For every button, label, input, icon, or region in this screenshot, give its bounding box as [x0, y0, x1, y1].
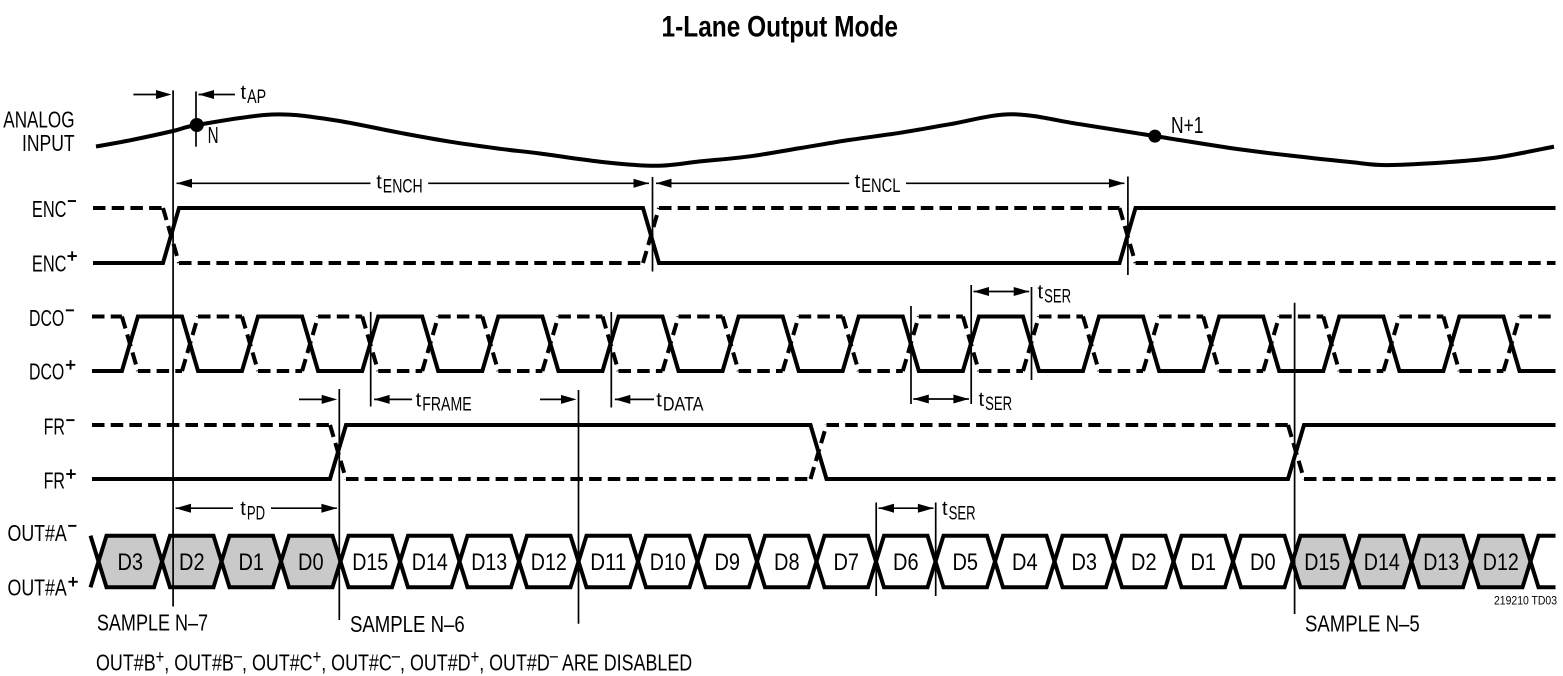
- svg-text:D2: D2: [179, 549, 205, 576]
- svg-text:1-Lane Output Mode: 1-Lane Output Mode: [662, 10, 899, 43]
- svg-text:ANALOG: ANALOG: [3, 107, 74, 133]
- svg-text:D12: D12: [531, 549, 567, 576]
- svg-text:D7: D7: [833, 549, 859, 576]
- svg-text:D1: D1: [1190, 549, 1216, 576]
- svg-text:t: t: [855, 171, 861, 193]
- svg-text:t: t: [376, 171, 382, 193]
- svg-text:t: t: [1038, 282, 1044, 304]
- svg-text:t: t: [979, 389, 985, 411]
- svg-text:t: t: [416, 389, 422, 411]
- svg-text:D14: D14: [412, 549, 448, 576]
- svg-text:D3: D3: [1071, 549, 1097, 576]
- svg-text:D9: D9: [714, 549, 740, 576]
- svg-text:INPUT: INPUT: [22, 130, 75, 156]
- svg-text:SAMPLE N–7: SAMPLE N–7: [97, 610, 208, 636]
- svg-text:t: t: [240, 498, 246, 520]
- svg-text:DATA: DATA: [663, 395, 704, 416]
- svg-text:D10: D10: [650, 549, 686, 576]
- svg-text:D15: D15: [352, 549, 388, 576]
- svg-text:D13: D13: [1423, 549, 1459, 576]
- svg-text:N: N: [208, 122, 219, 148]
- svg-text:FR: FR: [44, 468, 65, 494]
- svg-text:D11: D11: [590, 549, 626, 576]
- svg-text:SER: SER: [985, 394, 1012, 415]
- svg-text:t: t: [656, 389, 662, 411]
- svg-text:D1: D1: [238, 549, 264, 576]
- svg-text:D15: D15: [1304, 549, 1340, 576]
- svg-text:PD: PD: [247, 503, 265, 524]
- svg-text:SAMPLE N–5: SAMPLE N–5: [1305, 611, 1420, 637]
- svg-text:D6: D6: [893, 549, 919, 576]
- svg-text:AP: AP: [247, 87, 266, 108]
- svg-text:SER: SER: [1044, 287, 1071, 308]
- svg-text:OUT#A: OUT#A: [8, 575, 68, 601]
- svg-text:ENCL: ENCL: [861, 176, 900, 197]
- svg-text:SER: SER: [949, 503, 976, 524]
- svg-text:N+1: N+1: [1171, 112, 1204, 138]
- svg-text:OUT#A: OUT#A: [8, 520, 68, 546]
- svg-text:SAMPLE N–6: SAMPLE N–6: [350, 611, 465, 637]
- svg-text:DCO: DCO: [29, 359, 64, 385]
- svg-text:219210 TD03: 219210 TD03: [1494, 596, 1557, 608]
- svg-text:D13: D13: [471, 549, 507, 576]
- svg-text:DCO: DCO: [29, 305, 64, 331]
- svg-text:ENCH: ENCH: [383, 177, 423, 198]
- svg-text:D2: D2: [1131, 549, 1157, 576]
- svg-text:D4: D4: [1012, 549, 1038, 576]
- svg-text:ENC: ENC: [32, 250, 67, 276]
- svg-text:D8: D8: [774, 549, 800, 576]
- svg-text:D0: D0: [1250, 549, 1276, 576]
- svg-text:D12: D12: [1483, 549, 1519, 576]
- svg-text:t: t: [241, 82, 247, 104]
- svg-text:t: t: [942, 498, 948, 520]
- svg-text:ENC: ENC: [32, 196, 67, 222]
- svg-text:D14: D14: [1364, 549, 1400, 576]
- svg-text:D0: D0: [298, 549, 324, 576]
- svg-text:D5: D5: [952, 549, 978, 576]
- svg-text:FR: FR: [44, 414, 65, 440]
- svg-text:D3: D3: [117, 549, 143, 576]
- svg-text:FRAME: FRAME: [422, 395, 472, 416]
